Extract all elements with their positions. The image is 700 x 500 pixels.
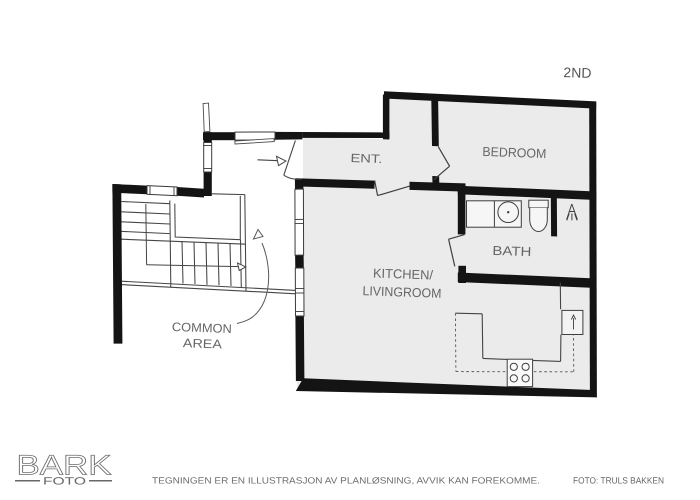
svg-text:FOTO: TRULS BAKKEN: FOTO: TRULS BAKKEN — [573, 476, 664, 486]
svg-text:BEDROOM: BEDROOM — [482, 144, 546, 161]
svg-text:AREA: AREA — [183, 336, 223, 351]
svg-text:FOTO: FOTO — [43, 476, 86, 488]
svg-text:TEGNINGEN ER EN ILLUSTRASJON A: TEGNINGEN ER EN ILLUSTRASJON AV PLANLØSN… — [152, 476, 540, 486]
svg-text:LIVINGROOM: LIVINGROOM — [362, 283, 441, 301]
svg-text:ENT.: ENT. — [350, 151, 382, 166]
svg-text:KITCHEN/: KITCHEN/ — [373, 265, 434, 282]
svg-text:COMMON: COMMON — [172, 320, 232, 336]
svg-text:2ND: 2ND — [563, 64, 591, 81]
svg-text:BATH: BATH — [492, 243, 531, 259]
